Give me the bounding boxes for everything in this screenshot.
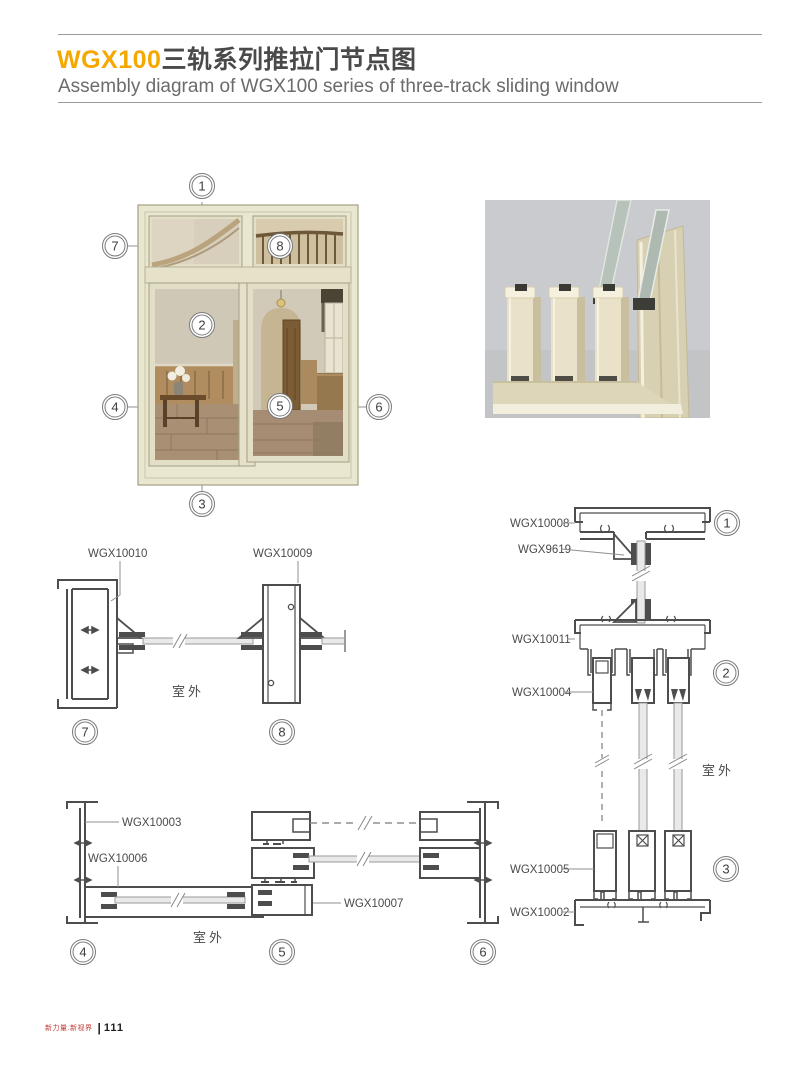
page-footer: 新力量.新视界 | 111	[45, 1021, 124, 1035]
label-wgx10003: WGX10003	[122, 817, 181, 829]
callout-2: 2	[190, 313, 215, 338]
page-subtitle: Assembly diagram of WGX100 series of thr…	[58, 76, 619, 98]
profiles-wgx10005	[594, 831, 691, 899]
callout-3-number: 3	[198, 497, 205, 512]
title-chinese: 三轨系列推拉门节点图	[161, 46, 416, 74]
outdoor-label-123: 室外	[702, 763, 734, 778]
callout-5-number: 5	[276, 399, 283, 414]
callouts-4-5-6: 4 5 6	[71, 940, 496, 965]
section-drawing-4-5-6: WGX10003 WGX10006 WGX10007 室外 4 5 6	[55, 790, 515, 970]
callout-7-number: 7	[111, 239, 118, 254]
glazing-left	[117, 618, 253, 653]
callout-sec2-number: 2	[722, 666, 729, 681]
profile-wgx10010-outline	[58, 580, 117, 708]
outdoor-label-78: 室外	[172, 684, 204, 699]
window-elevation-figure: 1 7 8 2 4 5 6	[75, 170, 400, 525]
footer-page-number: 111	[104, 1022, 124, 1034]
title-series-code: WGX100	[57, 46, 161, 74]
callout-1: 1	[190, 174, 215, 199]
callout-7: 7	[103, 234, 128, 259]
profile-wgx9619	[614, 534, 651, 623]
callout-6: 6	[367, 395, 392, 420]
sliding-panel-right	[239, 283, 349, 466]
labels-1-2-3: WGX10008 WGX9619 WGX10011 WGX10004 WGX10…	[510, 518, 734, 919]
callout-3: 3	[190, 492, 215, 517]
profile-wgx10006-outline	[85, 887, 263, 917]
profile-wgx10009-outline	[239, 585, 345, 703]
label-wgx10005: WGX10005	[510, 864, 569, 876]
callouts-1-2-3: 1 2 3	[714, 511, 740, 882]
labels-4-5-6: WGX10003 WGX10006 WGX10007 室外	[85, 817, 403, 945]
page-title: WGX100三轨系列推拉门节点图	[57, 40, 416, 76]
callouts-7-8: 7 8	[73, 720, 295, 745]
footer-brand-slogan: 新力量.新视界	[45, 1023, 92, 1033]
profiles-wgx10004	[593, 658, 689, 710]
callout-sec3-number: 3	[722, 862, 729, 877]
section-drawing-7-8: WGX10010 WGX10009 室外 7 8	[55, 535, 385, 750]
label-wgx10002: WGX10002	[510, 907, 569, 919]
callout-8: 8	[268, 234, 293, 259]
callout-1-number: 1	[198, 179, 205, 194]
outdoor-label-456: 室外	[193, 930, 225, 945]
glass-runs-middle	[309, 816, 421, 866]
callout-2-number: 2	[198, 318, 205, 333]
profile-arrow-symbols	[82, 627, 98, 673]
transom-pane-left	[149, 216, 242, 269]
footer-divider: |	[97, 1021, 100, 1035]
transom-pane-right	[253, 216, 346, 267]
profile-wgx10002-outline	[575, 892, 710, 925]
callout-4-number: 4	[111, 400, 118, 415]
callout-6-number: 6	[375, 400, 382, 415]
section-drawing-1-2-3: WGX10008 WGX9619 WGX10011 WGX10004 WGX10…	[505, 503, 755, 935]
callout-sec8-number: 8	[278, 725, 285, 740]
sash-boxes-right	[420, 812, 480, 878]
label-wgx9619: WGX9619	[518, 544, 571, 556]
callout-sec7-number: 7	[81, 725, 88, 740]
label-wgx10011: WGX10011	[512, 634, 571, 646]
callout-sec4-number: 4	[79, 945, 86, 960]
profile-wgx10008-outline	[575, 508, 710, 539]
vertical-glass-runs	[595, 703, 687, 831]
label-wgx10007: WGX10007	[344, 898, 403, 910]
window-mid-rail	[145, 267, 351, 283]
header-rule-top	[58, 34, 762, 35]
label-wgx10006: WGX10006	[88, 853, 147, 865]
catalog-page: WGX100三轨系列推拉门节点图 Assembly diagram of WGX…	[0, 0, 800, 1075]
label-wgx10010: WGX10010	[88, 548, 147, 560]
interlock-stack-center	[252, 812, 314, 915]
render-track-profiles	[505, 284, 629, 386]
callout-sec6-number: 6	[479, 945, 486, 960]
callout-sec5-number: 5	[278, 945, 285, 960]
profile-3d-render	[485, 200, 710, 418]
header-rule-bottom	[58, 102, 762, 103]
callout-4: 4	[103, 395, 128, 420]
label-wgx10004: WGX10004	[512, 687, 572, 699]
callout-sec1-number: 1	[723, 516, 730, 531]
label-wgx10009: WGX10009	[253, 548, 312, 560]
callout-8-number: 8	[276, 239, 283, 254]
sliding-panel-left	[149, 283, 245, 466]
label-wgx10008: WGX10008	[510, 518, 569, 530]
callout-5: 5	[268, 394, 293, 419]
